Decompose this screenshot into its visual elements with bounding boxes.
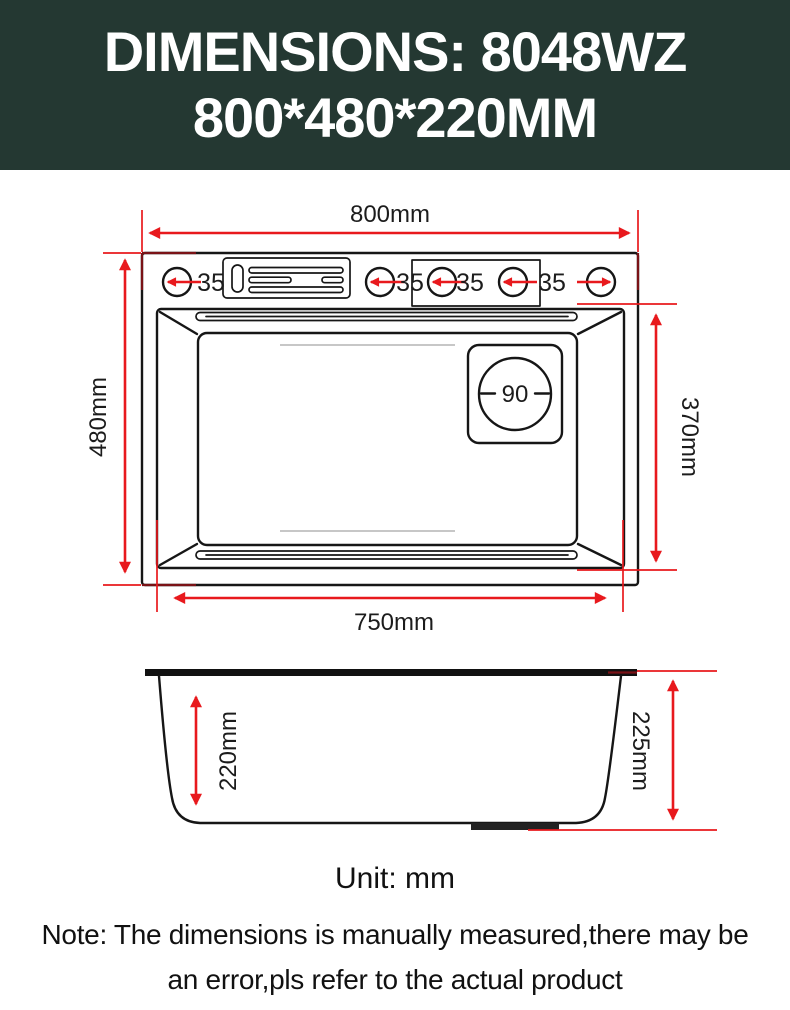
drain-stub — [471, 823, 559, 830]
dimension-diagram: 90 — [0, 0, 790, 1010]
hole-35-label: 35 — [396, 269, 424, 297]
sink-top-view: 90 — [142, 253, 638, 585]
dim-370-label: 370mm — [676, 397, 703, 477]
dim-800-label: 800mm — [350, 201, 430, 228]
note-line-2: an error,pls refer to the actual product — [0, 957, 790, 1002]
sink-outer-rim — [142, 253, 638, 585]
dim-220-label: 220mm — [215, 711, 242, 791]
dim-225-label: 225mm — [627, 711, 654, 791]
hole-35-label: 35 — [456, 269, 484, 297]
hole-35-label: 35 — [197, 269, 225, 297]
dim-480-label: 480mm — [85, 377, 112, 457]
unit-label: Unit: mm — [0, 862, 790, 896]
sink-rim-bar — [145, 669, 637, 676]
note-text: Note: The dimensions is manually measure… — [0, 912, 790, 1002]
dim-750-label: 750mm — [354, 609, 434, 636]
note-line-1: Note: The dimensions is manually measure… — [0, 912, 790, 957]
drain-diameter-label: 90 — [502, 381, 529, 408]
product-dimension-image: DIMENSIONS: 8048WZ 800*480*220MM — [0, 0, 790, 1010]
hole-35-label: 35 — [538, 269, 566, 297]
